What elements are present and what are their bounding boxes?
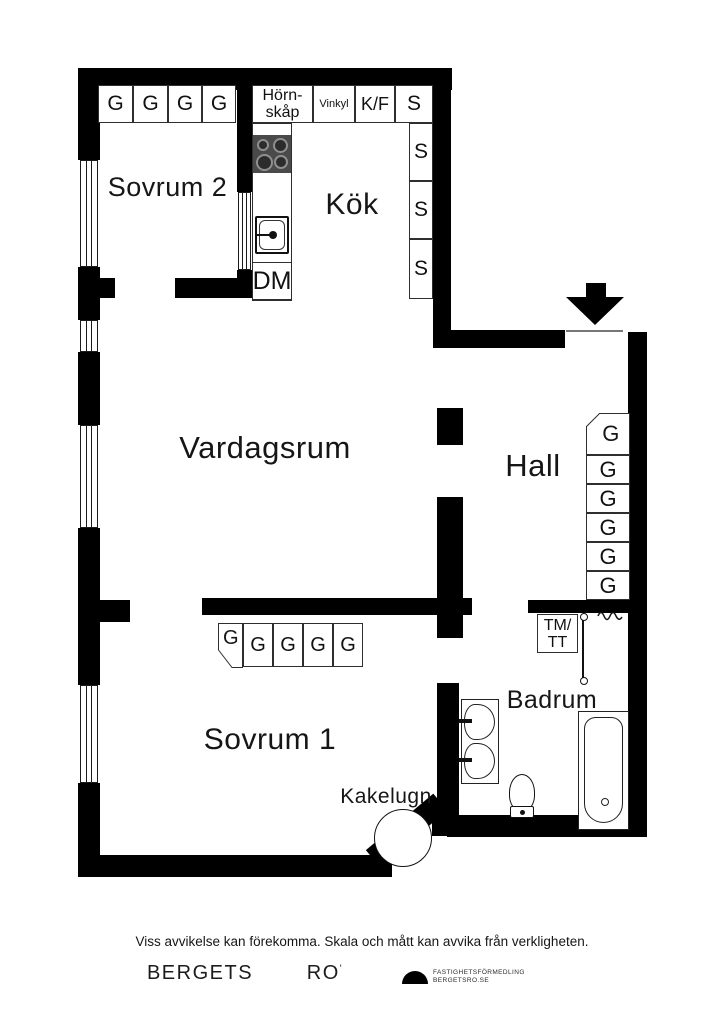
g-label: G: [599, 573, 616, 599]
door-hinge-dot: [580, 613, 588, 621]
brand-word-bergets: BERGETS: [140, 962, 260, 985]
interior-window-icon: [238, 192, 251, 270]
s-label: S: [414, 257, 428, 281]
cabinet-hornskap: Hörn- skåp: [252, 85, 313, 123]
g-label: G: [599, 457, 616, 483]
wall-left-a: [78, 68, 100, 160]
cabinet-s-3: S: [409, 239, 433, 299]
room-label-hall: Hall: [483, 448, 583, 484]
window-icon: [80, 685, 98, 783]
cabinet-s-top: S: [395, 85, 433, 123]
room-label-kok: Kök: [302, 188, 402, 222]
tap-icon: [459, 758, 472, 762]
wall-stub-vardagsrum: [78, 600, 130, 622]
room-label-vardagsrum: Vardagsrum: [170, 430, 360, 466]
vinkyl-label: Vinkyl: [319, 98, 348, 110]
tt-label: TT: [548, 634, 568, 651]
door-leaf: [582, 617, 584, 680]
brand-word-ro: RO': [298, 962, 352, 985]
tm-label: TM/: [544, 617, 572, 634]
g-label: G: [107, 92, 123, 116]
window-icon: [80, 320, 98, 352]
dome-logo-icon: [402, 971, 428, 984]
s-label: S: [414, 198, 428, 222]
hornskap-label-2: skåp: [266, 104, 300, 121]
tap-icon: [459, 719, 472, 723]
cabinet-kf: K/F: [355, 85, 395, 123]
room-label-sovrum1: Sovrum 1: [180, 723, 360, 757]
entrance-sill: [566, 330, 623, 332]
wall-vardagsrum-hall: [437, 497, 463, 638]
disclaimer-text: Viss avvikelse kan förekomma. Skala och …: [0, 934, 724, 949]
wardrobe-cell: G: [273, 623, 303, 667]
kf-label: K/F: [361, 94, 389, 115]
wardrobe-cell: G: [133, 85, 168, 123]
g-label: G: [340, 634, 356, 657]
g-label: G: [599, 486, 616, 512]
wall-bottom: [78, 855, 392, 877]
g-label: G: [310, 634, 326, 657]
door-squiggle: [596, 607, 624, 623]
hornskap-label-1: Hörn-: [262, 87, 302, 104]
dishwasher-cell: DM: [252, 262, 292, 300]
wardrobe-cell: G: [586, 455, 630, 484]
g-label: G: [599, 544, 616, 570]
wall-right: [628, 332, 647, 837]
bathtub-drain: [601, 798, 609, 806]
entrance-arrow-icon: [566, 283, 626, 326]
logo-line-2: BERGETSRO.SE: [433, 977, 563, 985]
wall-stub-sovrum2: [78, 278, 115, 298]
wall-pillar: [437, 408, 463, 445]
wardrobe-cell: G: [586, 513, 630, 542]
cabinet-vinkyl: Vinkyl: [313, 85, 355, 123]
wardrobe-cell: G: [333, 623, 363, 667]
wall-hall-bottom: [528, 600, 647, 613]
room-label-badrum: Badrum: [492, 686, 612, 715]
g-label: G: [177, 92, 193, 116]
g-label: G: [142, 92, 158, 116]
dm-label: DM: [253, 267, 292, 296]
wall-sovrum1-top: [202, 598, 472, 615]
g-label: G: [598, 421, 624, 447]
cabinet-s-2: S: [409, 181, 433, 239]
g-label: G: [250, 634, 266, 657]
s-label: S: [414, 140, 428, 164]
wardrobe-cell: G: [243, 623, 273, 667]
stove-icon: [253, 135, 291, 173]
door-end-dot: [580, 677, 588, 685]
g-label: G: [280, 634, 296, 657]
g-label: G: [220, 627, 242, 650]
wardrobe-cell: G: [202, 85, 236, 123]
cabinet-s-1: S: [409, 123, 433, 181]
logo-text: FASTIGHETSFÖRMEDLING BERGETSRO.SE: [433, 969, 563, 985]
wall-hall-top: [433, 330, 565, 348]
window-icon: [80, 425, 98, 528]
s-label: S: [407, 92, 421, 116]
brand-ro-text: RO: [307, 962, 340, 984]
sink-icon: [255, 216, 289, 254]
floor-plan: Hörn- skåp Vinkyl K/F S S S S DM G G G G: [0, 0, 724, 1024]
wardrobe-cell: G: [168, 85, 202, 123]
wardrobe-cell: G: [586, 571, 630, 600]
logo-line-1: FASTIGHETSFÖRMEDLING: [433, 969, 563, 977]
wall-left-c: [78, 352, 100, 425]
wardrobe-cell: G: [586, 484, 630, 513]
g-label: G: [599, 515, 616, 541]
wall-sovrum2-bottom: [175, 278, 252, 298]
g-label: G: [211, 92, 227, 116]
bathtub-inner: [584, 717, 623, 823]
wardrobe-cell: G: [98, 85, 133, 123]
kakelugn-icon: [374, 809, 432, 867]
room-label-sovrum2: Sovrum 2: [95, 172, 240, 203]
wall-kitchen-right: [433, 68, 451, 348]
wardrobe-cell: G: [303, 623, 333, 667]
wardrobe-cell: G: [586, 542, 630, 571]
washer-dryer-cell: TM/ TT: [537, 614, 578, 653]
brand-mark: ': [340, 963, 343, 974]
label-kakelugn: Kakelugn: [326, 785, 446, 809]
toilet-dot: [520, 810, 525, 815]
